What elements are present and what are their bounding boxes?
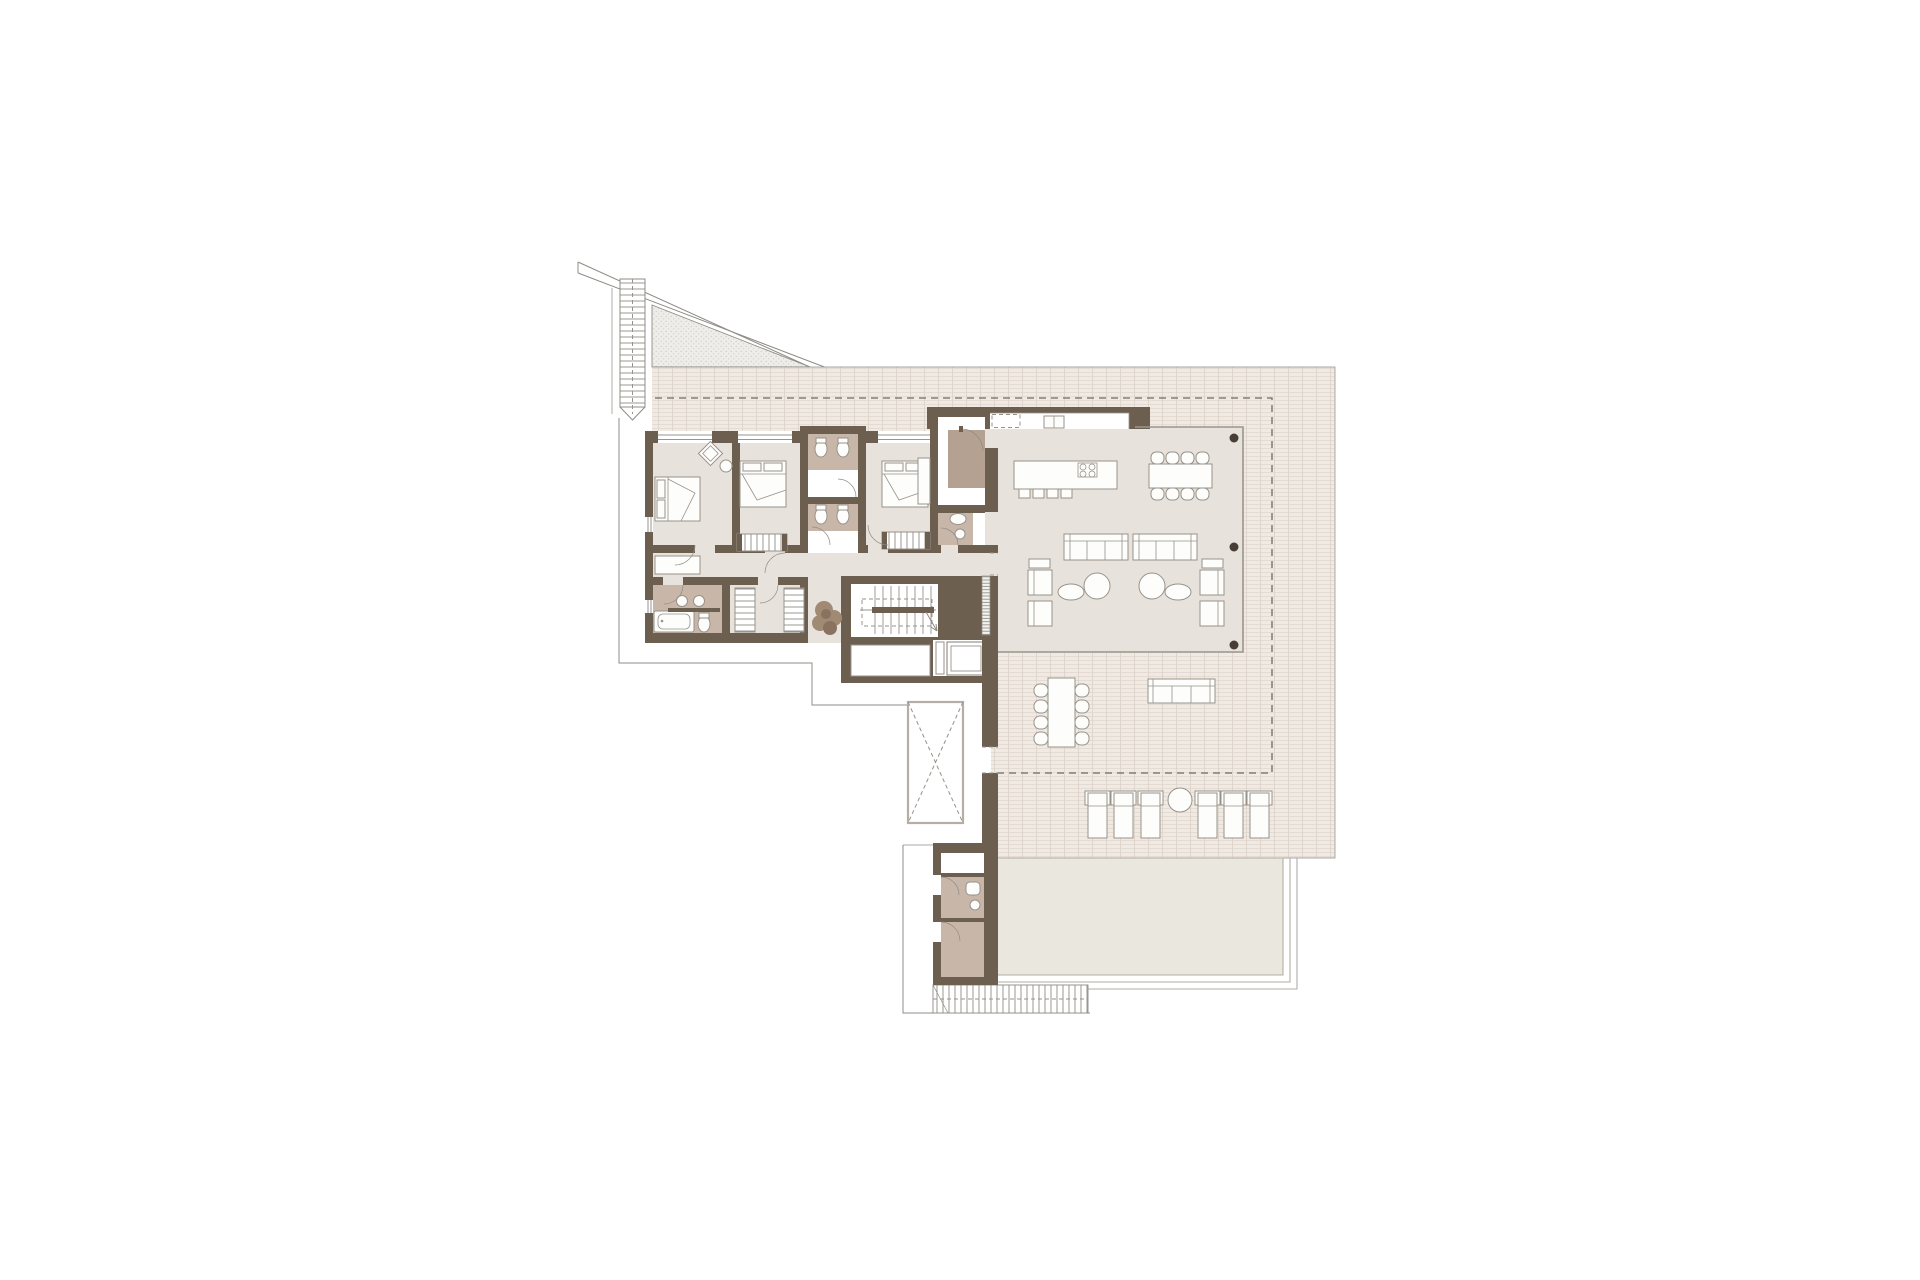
bathtub-drain bbox=[661, 620, 664, 623]
coffee-table-round bbox=[1139, 573, 1165, 599]
outdoor-side-table bbox=[1168, 788, 1192, 812]
kitchen-island bbox=[1014, 461, 1117, 489]
toilet bbox=[966, 882, 980, 895]
ensuite-bathroom bbox=[938, 513, 985, 545]
wardrobe-tall bbox=[735, 588, 755, 632]
ottoman bbox=[1058, 584, 1084, 600]
pool-water bbox=[991, 858, 1283, 975]
bar-stool bbox=[1033, 489, 1044, 498]
sun-lounger bbox=[1111, 791, 1136, 838]
sofa bbox=[1133, 534, 1197, 560]
pool-changing-door-gap bbox=[933, 922, 941, 942]
pool-changing-floor bbox=[941, 922, 984, 977]
sofa bbox=[1064, 534, 1128, 560]
garden-steps bbox=[933, 985, 1088, 1013]
toilet-tank bbox=[816, 505, 826, 510]
side-table-round bbox=[720, 460, 732, 472]
wall-spine-upper bbox=[982, 635, 998, 747]
column bbox=[1230, 543, 1239, 552]
entry-door-leaf bbox=[959, 426, 963, 432]
wardrobe-low bbox=[737, 534, 787, 551]
bar-stool bbox=[1047, 489, 1058, 498]
side-table bbox=[1029, 559, 1050, 568]
entry-hall bbox=[938, 417, 985, 505]
slope-triangle bbox=[652, 305, 810, 367]
wall-bed2-baths bbox=[800, 426, 808, 553]
stair-core bbox=[841, 576, 998, 683]
wall-baths-north bbox=[804, 426, 862, 434]
pool-storage bbox=[941, 853, 984, 873]
bidet-tank bbox=[838, 505, 848, 510]
toilet bbox=[950, 514, 966, 525]
outdoor-sofa bbox=[1148, 679, 1215, 703]
coffee-table-round bbox=[1084, 573, 1110, 599]
outdoor-table bbox=[1048, 678, 1075, 747]
wall-entry-bath bbox=[938, 505, 985, 513]
bar-stool bbox=[1019, 489, 1030, 498]
column bbox=[1230, 641, 1239, 650]
sun-lounger bbox=[1085, 791, 1110, 838]
sink bbox=[970, 900, 980, 910]
toilet-tank bbox=[699, 613, 709, 618]
bed-pillow bbox=[764, 463, 782, 471]
armchair bbox=[1028, 570, 1052, 595]
void-skylight bbox=[908, 702, 963, 823]
vanity-counter bbox=[668, 608, 720, 612]
wardrobe-low bbox=[882, 532, 930, 549]
understair-storage bbox=[851, 645, 930, 676]
pool-bath-door-gap bbox=[933, 875, 941, 895]
floor-plan-canvas bbox=[0, 0, 1920, 1280]
sun-lounger bbox=[1247, 791, 1272, 838]
bed-pillow bbox=[743, 463, 761, 471]
outdoor-dining bbox=[1034, 678, 1089, 747]
sink bbox=[677, 596, 688, 607]
floor-plan-page bbox=[0, 0, 1920, 1280]
wall-between-baths bbox=[808, 497, 858, 504]
dining-table bbox=[1149, 464, 1212, 488]
bathroom-b bbox=[808, 504, 858, 553]
bidet-tank bbox=[838, 438, 848, 443]
bed-pillow bbox=[657, 480, 665, 498]
ensuite-shower bbox=[973, 513, 985, 545]
bath-a-shower bbox=[808, 470, 858, 497]
armchair bbox=[1200, 570, 1224, 595]
pool-rooms bbox=[933, 843, 998, 985]
bed-pillow bbox=[657, 500, 665, 518]
exterior-stair bbox=[620, 279, 645, 420]
elevator-shaft bbox=[947, 642, 985, 675]
family-bathroom bbox=[653, 585, 722, 633]
sun-lounger bbox=[1195, 791, 1220, 838]
bathroom-a bbox=[808, 434, 858, 497]
toilet-tank bbox=[816, 438, 826, 443]
column bbox=[1230, 434, 1239, 443]
wall-bed1-bed2 bbox=[732, 443, 740, 545]
armchair bbox=[1028, 601, 1052, 626]
bed-pillow bbox=[885, 463, 903, 471]
sink bbox=[694, 596, 705, 607]
desk bbox=[918, 458, 930, 504]
sun-lounger bbox=[1221, 791, 1246, 838]
bath-b-shower bbox=[808, 531, 858, 553]
elevator-door bbox=[936, 642, 944, 674]
pool bbox=[991, 858, 1297, 989]
armchair bbox=[1200, 601, 1224, 626]
sun-lounger bbox=[1138, 791, 1163, 838]
bar-stool bbox=[1061, 489, 1072, 498]
ottoman bbox=[1165, 584, 1191, 600]
wall-entry-east bbox=[985, 448, 998, 512]
wall-bath-closet bbox=[722, 585, 730, 633]
wardrobe-tall bbox=[784, 588, 804, 632]
planted-slope bbox=[652, 305, 810, 367]
wall-spine-lower bbox=[982, 773, 998, 845]
wall-glazed-hatch bbox=[982, 576, 990, 635]
stair-handrail bbox=[872, 607, 934, 613]
side-table bbox=[1202, 559, 1223, 568]
wall-baths-bed3 bbox=[858, 426, 866, 553]
wall-south-west bbox=[645, 633, 807, 643]
